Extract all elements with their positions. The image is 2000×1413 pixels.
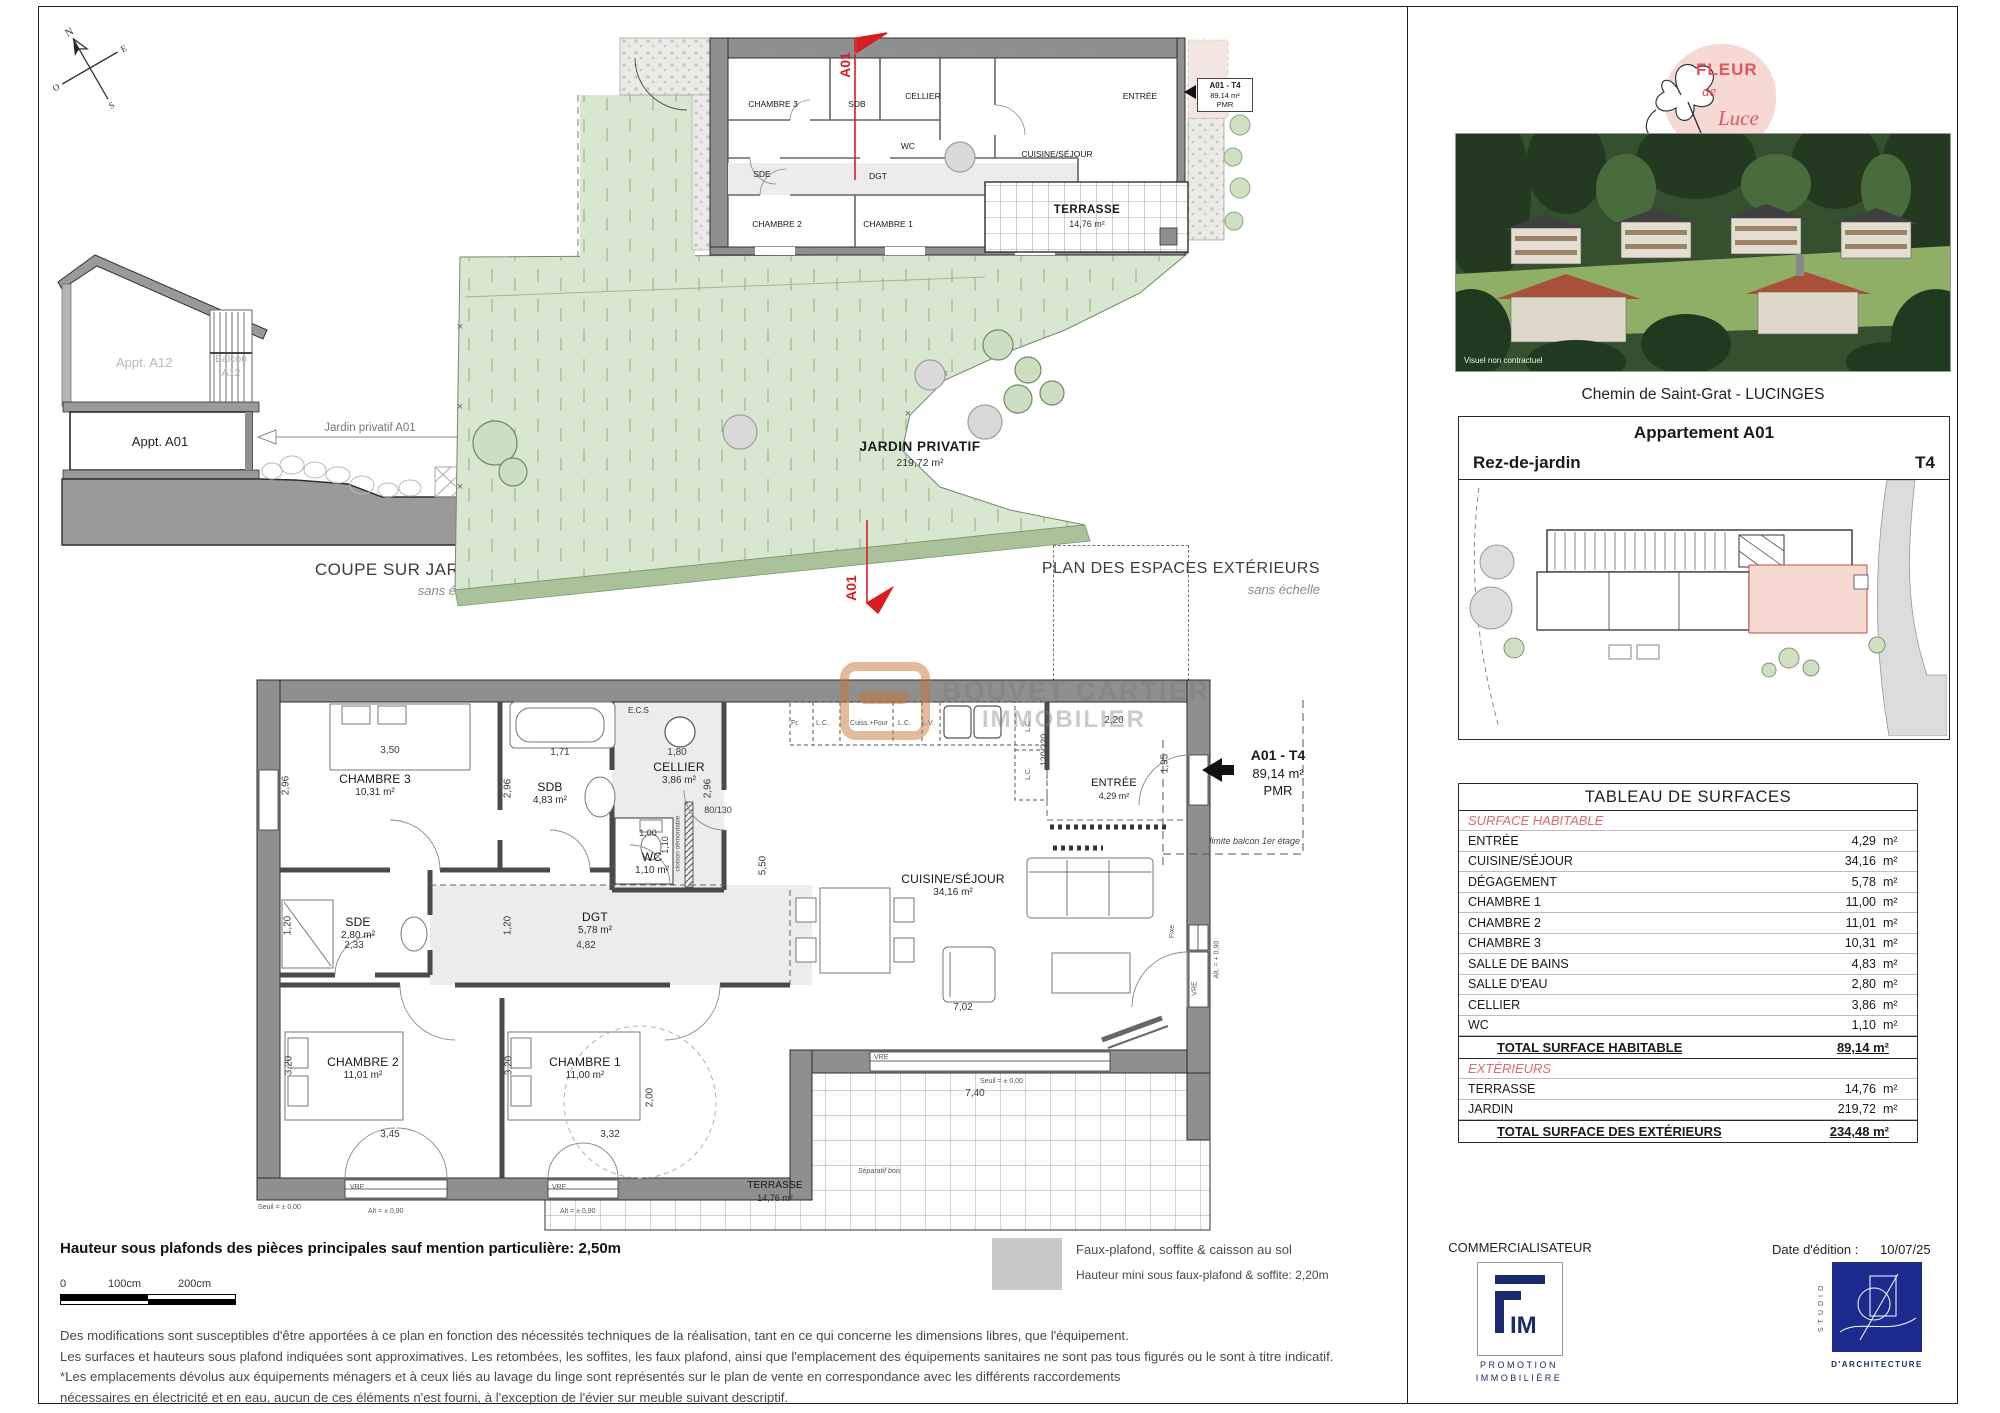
- table-total-habitable: TOTAL SURFACE HABITABLE89,14 m²: [1459, 1036, 1917, 1059]
- unit-type: T4: [1915, 453, 1935, 473]
- commercialisateur-label: COMMERCIALISATEUR: [1438, 1240, 1602, 1255]
- svg-text:A12: A12: [222, 367, 241, 379]
- studio-sub-label: D'ARCHITECTURE: [1818, 1360, 1936, 1369]
- site-plan-drawing: [1459, 480, 1947, 736]
- ceiling-height-note: Hauteur sous plafonds des pièces princip…: [60, 1240, 621, 1257]
- room-label-sde: SDE2,80 m²: [318, 915, 398, 943]
- table-row: CHAMBRE 211,01m²: [1459, 913, 1917, 934]
- dim-ch3-w: 3,50: [370, 745, 410, 756]
- table-row: TERRASSE14,76m²: [1459, 1079, 1917, 1100]
- dim-dgt-h: 1,20: [503, 906, 514, 946]
- ext-tag-arrow-icon: [1184, 85, 1196, 99]
- room-label-cuisine-sejour: CUISINE/SÉJOUR34,16 m²: [878, 872, 1028, 900]
- dim-ch3-h: 2,96: [281, 766, 292, 806]
- table-row: CHAMBRE 310,31m²: [1459, 934, 1917, 955]
- ext-room-wc: WC: [888, 135, 928, 155]
- scale-200: 200cm: [178, 1278, 211, 1290]
- fim-sub-2: IMMOBILIÈRE: [1462, 1373, 1576, 1383]
- panel-divider: [1407, 6, 1408, 1403]
- legend-swatch: [992, 1238, 1062, 1290]
- fixe-label: Fixe: [1169, 925, 1176, 938]
- main-tag-arrow-tail: [1220, 765, 1234, 775]
- fim-sub-1: PROMOTION: [1462, 1360, 1576, 1370]
- ext-room-chambre3: CHAMBRE 3: [728, 93, 818, 113]
- svg-text:Jardin privatif A01: Jardin privatif A01: [324, 422, 415, 434]
- limite-balcon-label: limite balcon 1er étage: [1180, 836, 1300, 846]
- room-label-entree: ENTRÉE4,29 m²: [1074, 777, 1154, 802]
- architecture-logo-glyph: [1832, 1262, 1922, 1352]
- alt-090-label-1: Alt = ± 0,90: [368, 1208, 404, 1215]
- cloison-demontable-label: cloison démontable: [675, 814, 682, 874]
- surface-table-section-habitable: SURFACE HABITABLE: [1459, 811, 1917, 831]
- unit-title: Appartement A01: [1459, 423, 1949, 443]
- surface-table-title: TABLEAU DE SURFACES: [1459, 784, 1917, 811]
- watermark-text-2: IMMOBILIER: [982, 706, 1146, 734]
- watermark-text-1: BOUVET CARTIER: [942, 676, 1210, 707]
- dim-sde-h: 1,20: [283, 906, 294, 946]
- svg-text:×: ×: [457, 401, 463, 413]
- unit-level: Rez-de-jardin: [1473, 453, 1581, 473]
- exterior-plan-drawing: ××× ××: [440, 25, 1280, 625]
- logo-text-luce: Luce: [1718, 106, 1759, 131]
- room-label-chambre3: CHAMBRE 310,31 m²: [310, 772, 440, 800]
- svg-text:Appt. A12: Appt. A12: [116, 355, 172, 370]
- dim-cuisine-w: 7,02: [943, 1002, 983, 1013]
- ext-room-cellier: CELLIER: [888, 85, 958, 105]
- svg-text:Appt. A01: Appt. A01: [132, 434, 188, 449]
- ecs-label: E.C.S: [628, 706, 649, 715]
- coupe-sur-jardin: Jardin privatif A01 Appt. A12 Balcon A12…: [50, 250, 500, 615]
- logo-text-fleur: FLEUR: [1696, 60, 1758, 80]
- ext-room-sdb: SDB: [835, 93, 879, 113]
- project-photo: Visuel non contractuel: [1456, 134, 1950, 371]
- dim-ch2-w: 3,45: [370, 1129, 410, 1140]
- table-total-exterieurs: TOTAL SURFACE DES EXTÉRIEURS234,48 m²: [1459, 1120, 1917, 1142]
- exterior-plan: ××× ××: [440, 25, 1280, 625]
- photo-caption: Visuel non contractuel: [1464, 356, 1543, 365]
- ext-room-cuisine: CUISINE/SÉJOUR: [1007, 143, 1107, 163]
- dim-ch2-h: 3,20: [284, 1046, 295, 1086]
- plan-sheet: N E S O: [0, 0, 2000, 1413]
- room-label-chambre2: CHAMBRE 211,01 m²: [298, 1055, 428, 1083]
- main-plan-drawing: [250, 640, 1340, 1240]
- table-row: JARDIN219,72m²: [1459, 1100, 1917, 1121]
- project-address: Chemin de Saint-Grat - LUCINGES: [1456, 386, 1950, 404]
- svg-text:E: E: [119, 43, 129, 55]
- disclaimer-line-4: nécessaires en électricité et en eau, au…: [60, 1388, 1390, 1409]
- ext-room-chambre2: CHAMBRE 2: [732, 213, 822, 233]
- svg-text:×: ×: [457, 321, 463, 333]
- ext-terrasse-label: TERRASSE 14,76 m²: [1022, 199, 1152, 230]
- edition-date-value: 10/07/25: [1880, 1242, 1931, 1257]
- dim-entree-h: 1,95: [1160, 744, 1171, 784]
- table-row: WC1,10m²: [1459, 1016, 1917, 1037]
- fim-logo-glyph: IM: [1478, 1263, 1562, 1355]
- table-row: CHAMBRE 111,00m²: [1459, 893, 1917, 914]
- dim-wc-h: 1,10: [660, 830, 670, 860]
- dim-terrasse-w: 7,40: [955, 1088, 995, 1099]
- alt-090-label-2: Alt = ± 0,90: [560, 1208, 596, 1215]
- surface-table-section-exterieurs: EXTÉRIEURS: [1459, 1059, 1917, 1079]
- dim-sde-w: 2,33: [334, 940, 374, 951]
- vre-label-4: VRE: [1192, 981, 1199, 995]
- studio-vertical-label: STUDIO: [1818, 1262, 1830, 1352]
- ext-room-chambre1: CHAMBRE 1: [843, 213, 933, 233]
- main-tag-arrow-icon: [1202, 758, 1222, 782]
- kitchen-label-lc4: L.C.: [1025, 767, 1032, 780]
- seuil-label-2: Seuil = ± 0,00: [980, 1078, 1023, 1085]
- scale-100: 100cm: [108, 1278, 141, 1290]
- jardin-privatif-label: JARDIN PRIVATIF 219,72 m²: [820, 437, 1020, 470]
- compass-icon: N E S O: [44, 20, 136, 115]
- dim-cellier-h: 2,96: [703, 769, 714, 809]
- svg-text:×: ×: [457, 481, 463, 493]
- room-label-chambre1: CHAMBRE 111,00 m²: [520, 1055, 650, 1083]
- table-row: CUISINE/SÉJOUR34,16m²: [1459, 852, 1917, 873]
- ext-room-entree: ENTRÉE: [1100, 85, 1180, 105]
- table-row: SALLE DE BAINS4,83m²: [1459, 954, 1917, 975]
- table-row: CELLIER3,86m²: [1459, 995, 1917, 1016]
- edition-date-label: Date d'édition :: [1772, 1242, 1858, 1257]
- svg-text:S: S: [107, 100, 116, 111]
- room-label-wc: WC1,10 m²: [622, 850, 682, 878]
- watermark-logo-icon: [840, 662, 930, 740]
- ext-room-dgt: DGT: [856, 165, 900, 185]
- dim-ch1-h: 3,20: [504, 1046, 515, 1086]
- legend-line-1: Faux-plafond, soffite & caisson au sol: [1076, 1242, 1292, 1257]
- disclaimer-text: Des modifications sont susceptibles d'êt…: [60, 1326, 1390, 1408]
- disclaimer-line-1: Des modifications sont susceptibles d'êt…: [60, 1326, 1390, 1347]
- dim-sdb-h: 2,96: [503, 769, 514, 809]
- dim-sdb-w: 1,71: [540, 747, 580, 758]
- logo-text-de: de: [1702, 84, 1716, 101]
- table-row: DÉGAGEMENT5,78m²: [1459, 872, 1917, 893]
- dim-5-50: 5,50: [758, 846, 769, 886]
- kitchen-label-fr: Fr.: [791, 720, 799, 727]
- table-row: ENTRÉE4,29m²: [1459, 831, 1917, 852]
- fim-logo: IM: [1477, 1262, 1563, 1356]
- ext-unit-tag: A01 - T4 89,14 m² PMR: [1197, 78, 1253, 112]
- vre-label-1: VRE: [350, 1184, 364, 1191]
- svg-text:N: N: [63, 25, 76, 39]
- svg-text:O: O: [51, 81, 62, 93]
- dim-cellier-w: 1,80: [657, 747, 697, 758]
- room-label-dgt: DGT5,78 m²: [550, 910, 640, 938]
- alt-plus-090-label: Alt. = + 0,90: [1214, 929, 1221, 979]
- svg-text:×: ×: [905, 408, 911, 420]
- dim-80-130: 80/130: [692, 805, 744, 815]
- kitchen-label-lc1: L.C.: [816, 720, 829, 727]
- scale-bar: 0 100cm 200cm: [60, 1278, 260, 1308]
- room-label-sdb: SDB4,83 m²: [510, 780, 590, 808]
- unit-box: Appartement A01 Rez-de-jardin T4: [1458, 416, 1950, 740]
- scale-0: 0: [60, 1278, 66, 1290]
- architecture-studio-logo: [1832, 1262, 1922, 1352]
- ext-room-sde: SDE: [740, 163, 784, 183]
- vre-label-3: VRE: [874, 1054, 888, 1061]
- table-row: SALLE D'EAU2,80m²: [1459, 975, 1917, 996]
- main-unit-tag: A01 - T4 89,14 m² PMR: [1233, 746, 1323, 800]
- svg-text:Balcon: Balcon: [215, 353, 247, 365]
- main-floor-plan: CHAMBRE 310,31 m² SDB4,83 m² CELLIER3,86…: [250, 640, 1340, 1240]
- dim-ch1-w: 3,32: [590, 1129, 630, 1140]
- disclaimer-line-2: Les surfaces et hauteurs sous plafond in…: [60, 1347, 1390, 1368]
- seuil-label-1: Seuil = ± 0,00: [258, 1204, 301, 1211]
- disclaimer-line-3: *Les emplacements dévolus aux équipement…: [60, 1367, 1390, 1388]
- dim-dgt-w: 4,82: [566, 940, 606, 951]
- dim-terrasse-h: 2,00: [645, 1078, 656, 1118]
- legend-line-2: Hauteur mini sous faux-plafond & soffite…: [1076, 1268, 1329, 1282]
- separatif-bois-label: Séparatif bois: [858, 1168, 901, 1175]
- surface-table: TABLEAU DE SURFACES SURFACE HABITABLE EN…: [1458, 783, 1918, 1143]
- vre-label-2: VRE: [552, 1184, 566, 1191]
- svg-text:IM: IM: [1510, 1312, 1537, 1339]
- room-label-terrasse: TERRASSE14,76 m²: [710, 1180, 840, 1204]
